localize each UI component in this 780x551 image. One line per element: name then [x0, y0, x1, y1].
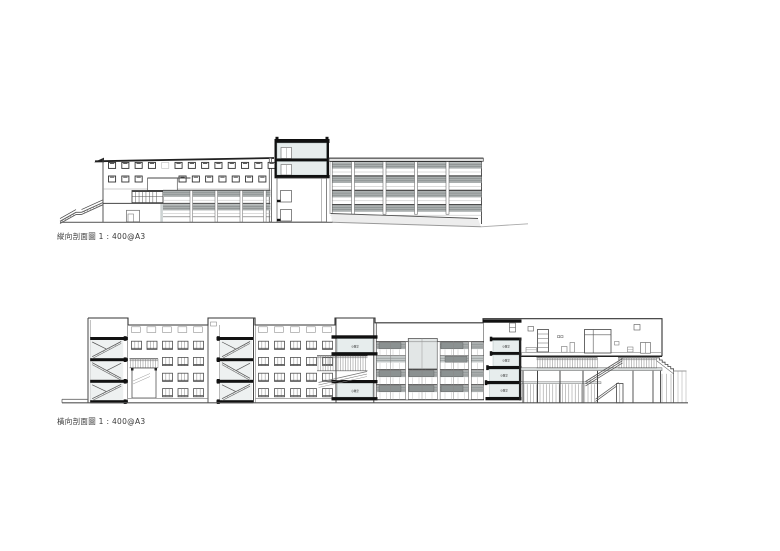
upper-wall-elevation [521, 325, 662, 357]
cut-stair-tower-2 [211, 322, 254, 404]
tiny-room-label: 小教室 [500, 389, 508, 393]
top-drawing-caption: 縱向剖面圖 1 : 400@A3 [57, 231, 145, 242]
tiny-room-label: 小教室 [500, 373, 508, 377]
piloti-level-and-stairs [521, 358, 687, 403]
building-outline [88, 318, 662, 403]
left-building-elevation [60, 158, 275, 224]
section-drawings-canvas: 小教室小教室小教室小教室小教室小教室 [0, 0, 780, 551]
tiny-room-label: 小教室 [351, 389, 359, 393]
louver-facade [377, 339, 485, 400]
window-facade-1 [128, 327, 208, 399]
section-cut-stair-tower [275, 137, 330, 222]
drawing-sheet: 小教室小教室小教室小教室小教室小教室 縱向剖面圖 1 : 400@A3 橫向剖面… [0, 0, 780, 551]
right-louver-building [329, 158, 483, 227]
bottom-drawing-caption: 橫向剖面圖 1 : 400@A3 [57, 416, 145, 427]
tiny-room-label: 小教室 [502, 345, 510, 349]
transverse-section-drawing: 小教室小教室小教室小教室小教室小教室 [62, 318, 688, 404]
tiny-room-label: 小教室 [502, 359, 510, 363]
longitudinal-section-drawing [60, 137, 528, 227]
cut-stair-tower-1 [90, 336, 128, 404]
tiny-room-label: 小教室 [351, 345, 359, 349]
